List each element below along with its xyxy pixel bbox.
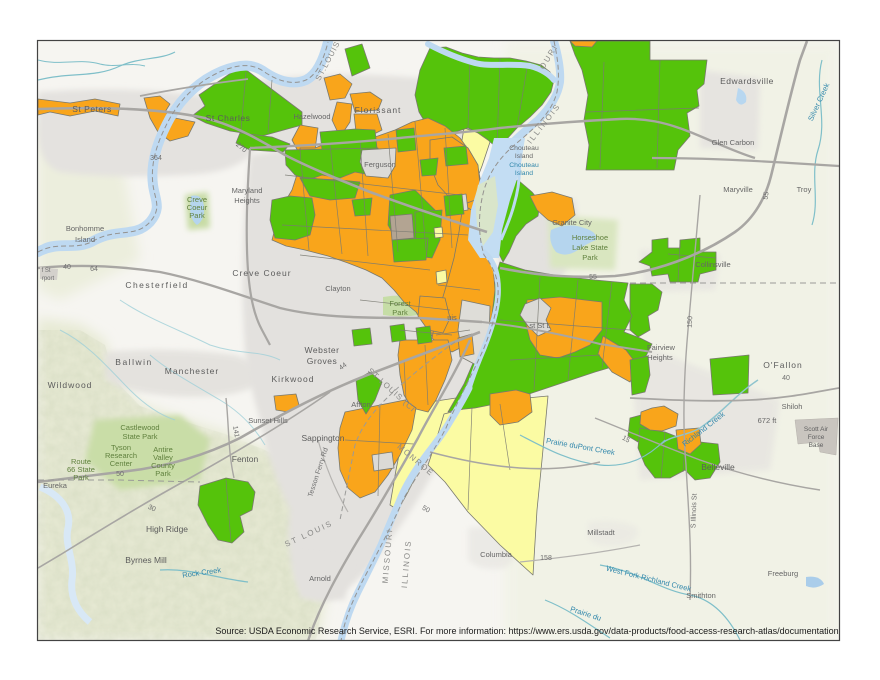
svg-text:55: 55 — [589, 274, 597, 281]
svg-text:uis: uis — [447, 313, 457, 322]
svg-text:Base: Base — [809, 442, 824, 449]
svg-text:Groves: Groves — [307, 356, 337, 366]
svg-text:40: 40 — [63, 264, 71, 271]
svg-text:364: 364 — [150, 155, 162, 162]
svg-text:Creve Coeur: Creve Coeur — [232, 268, 291, 278]
svg-text:Forest: Forest — [389, 299, 411, 308]
svg-text:Wildwood: Wildwood — [48, 380, 93, 390]
svg-text:Heights: Heights — [647, 353, 673, 362]
svg-text:High Ridge: High Ridge — [146, 524, 188, 534]
svg-text:Edwardsville: Edwardsville — [720, 76, 774, 86]
svg-text:rport: rport — [42, 276, 55, 282]
svg-text:Maryville: Maryville — [723, 185, 753, 194]
svg-text:Park: Park — [155, 469, 171, 478]
svg-text:Park: Park — [392, 308, 408, 317]
svg-text:Source: USDA Economic Research: Source: USDA Economic Research Service, … — [215, 626, 838, 636]
svg-text:Smithton: Smithton — [686, 591, 716, 600]
svg-text:Millstadt: Millstadt — [587, 528, 615, 537]
svg-text:Arnold: Arnold — [309, 574, 331, 583]
svg-text:Columbia: Columbia — [480, 550, 513, 559]
svg-text:Sunset Hills: Sunset Hills — [248, 416, 288, 425]
svg-text:40: 40 — [782, 375, 790, 382]
svg-text:Freeburg: Freeburg — [768, 569, 798, 578]
svg-text:S Illinois St: S Illinois St — [690, 493, 698, 528]
svg-text:Fairview: Fairview — [647, 343, 676, 352]
svg-text:Island: Island — [515, 170, 533, 177]
svg-text:Hazelwood: Hazelwood — [293, 112, 330, 121]
svg-text:St Peters: St Peters — [72, 104, 111, 114]
svg-text:f St: f St — [41, 268, 50, 274]
svg-text:64: 64 — [90, 266, 98, 273]
svg-text:Lake State: Lake State — [572, 243, 608, 252]
svg-text:Heights: Heights — [234, 196, 260, 205]
svg-text:Eureka: Eureka — [43, 481, 68, 490]
svg-text:Ballwin: Ballwin — [115, 357, 152, 367]
svg-text:158: 158 — [540, 555, 552, 562]
svg-text:Park: Park — [73, 473, 89, 482]
svg-text:Center: Center — [110, 459, 133, 468]
svg-text:Castlewood: Castlewood — [120, 423, 159, 432]
svg-text:Byrnes Mill: Byrnes Mill — [125, 555, 167, 565]
svg-text:State Park: State Park — [122, 432, 157, 441]
svg-text:st St L: st St L — [529, 321, 550, 330]
svg-text:Scott Air: Scott Air — [804, 426, 829, 433]
svg-text:Force: Force — [808, 434, 825, 441]
svg-text:Bonhomme: Bonhomme — [66, 224, 104, 233]
svg-text:Fenton: Fenton — [232, 454, 259, 464]
svg-text:Clayton: Clayton — [325, 284, 350, 293]
svg-text:Collinsville: Collinsville — [695, 260, 730, 269]
svg-text:Horseshoe: Horseshoe — [572, 233, 608, 242]
svg-text:Park: Park — [189, 211, 205, 220]
svg-text:50: 50 — [116, 471, 124, 478]
svg-text:O'Fallon: O'Fallon — [763, 360, 802, 370]
svg-text:150: 150 — [687, 316, 694, 328]
svg-text:Florissant: Florissant — [355, 105, 402, 115]
svg-text:Ferguson: Ferguson — [364, 160, 396, 169]
svg-text:Kirkwood: Kirkwood — [272, 374, 315, 384]
svg-text:Maryland: Maryland — [232, 186, 263, 195]
svg-text:Sappington: Sappington — [301, 433, 344, 443]
svg-text:Webster: Webster — [305, 345, 340, 355]
svg-text:Chouteau: Chouteau — [509, 162, 539, 169]
svg-text:Troy: Troy — [797, 185, 812, 194]
svg-text:Chesterfield: Chesterfield — [125, 280, 188, 290]
svg-text:Affton: Affton — [351, 400, 370, 409]
svg-text:Island: Island — [75, 235, 95, 244]
svg-text:Park: Park — [582, 253, 598, 262]
svg-text:St Charles: St Charles — [206, 113, 251, 123]
svg-text:672 ft: 672 ft — [758, 416, 778, 425]
svg-text:Belleville: Belleville — [701, 462, 735, 472]
svg-text:Glen Carbon: Glen Carbon — [712, 138, 755, 147]
svg-text:Granite City: Granite City — [552, 218, 592, 227]
svg-text:Chouteau: Chouteau — [509, 145, 539, 152]
svg-text:Manchester: Manchester — [165, 366, 219, 376]
svg-text:Island: Island — [515, 153, 533, 160]
svg-text:55: 55 — [762, 191, 770, 200]
svg-text:Shiloh: Shiloh — [782, 402, 803, 411]
